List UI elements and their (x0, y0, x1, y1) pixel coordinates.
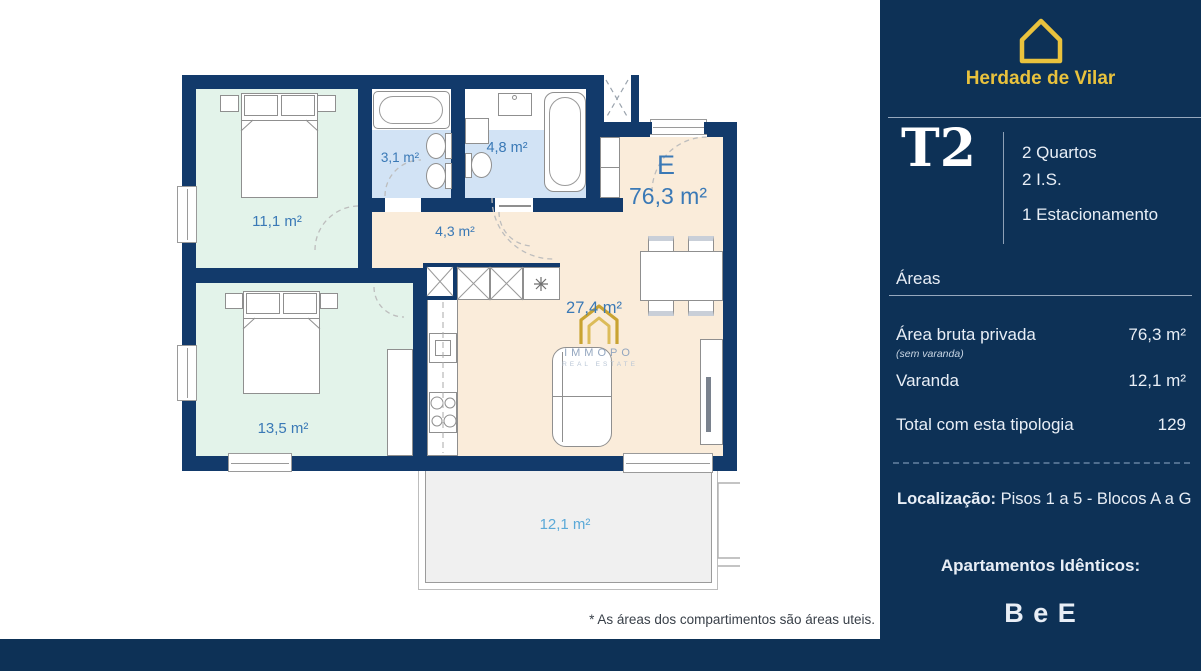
wall (723, 137, 737, 471)
label-bedroom-1: 11,1 m² (237, 213, 317, 230)
kitchen-shaft (423, 263, 457, 300)
dining-table (640, 251, 723, 301)
label-bedroom-2: 13,5 m² (243, 420, 323, 437)
feature-parking: 1 Estacionamento (1022, 205, 1158, 225)
kitchen-cabinet (457, 267, 490, 300)
label-bathroom-1: 3,1 m² (368, 150, 432, 165)
blanket-line (241, 120, 318, 121)
adjacent-balcony-lines (718, 483, 740, 566)
closet (600, 167, 620, 198)
footnote: * As áreas dos compartimentos são áreas … (589, 612, 875, 627)
area-row-value: 12,1 m² (1128, 371, 1186, 391)
project-name: Herdade de Vilar (880, 68, 1201, 90)
pillow (283, 293, 317, 314)
identical-value: B e E (880, 598, 1201, 629)
sidebar: Herdade de Vilar T2 2 Quartos 2 I.S. 1 E… (880, 0, 1201, 671)
blanket-line (243, 318, 320, 319)
closet (600, 137, 620, 168)
wall (182, 268, 427, 283)
feature-bathrooms: 2 I.S. (1022, 170, 1158, 190)
dining-chair (648, 236, 674, 252)
pillow (244, 95, 278, 116)
dining-chair (688, 236, 714, 252)
dashed-divider (893, 462, 1190, 464)
wall (707, 122, 737, 137)
typology-label: T2 (901, 123, 976, 175)
label-unit-area: 76,3 m² (622, 183, 714, 210)
entry-door (650, 119, 707, 135)
tv-cabinet (700, 339, 723, 445)
wall (413, 283, 427, 471)
nightstand (220, 95, 239, 112)
bidet-1-bowl (426, 163, 446, 189)
nightstand (225, 293, 243, 309)
stove (429, 392, 457, 433)
label-balcony: 12,1 m² (527, 516, 603, 533)
location-value: Pisos 1 a 5 - Blocos A a G (1001, 490, 1192, 508)
area-row-label: Varanda (896, 371, 959, 391)
feature-bedrooms: 2 Quartos (1022, 143, 1158, 163)
house-logo-icon (1019, 16, 1063, 64)
wardrobe-bedroom-2 (387, 349, 413, 456)
area-row-note: (sem varanda) (896, 348, 964, 360)
typology-divider (1003, 132, 1004, 244)
sofa (552, 347, 612, 447)
bidet-1-tank (445, 163, 452, 189)
tv (706, 377, 711, 432)
wall (451, 75, 465, 198)
area-row-label: Área bruta privada (896, 325, 1036, 345)
bathtub-2-basin (549, 97, 581, 186)
areas-heading: Áreas (896, 269, 940, 289)
toilet-1-tank (445, 133, 452, 159)
location-label: Localização: (897, 490, 996, 508)
wall (358, 198, 385, 212)
wall (358, 75, 372, 272)
identical-heading: Apartamentos Idênticos: (880, 556, 1201, 576)
sofa-back-line (562, 352, 563, 442)
area-row-value: 76,3 m² (1128, 325, 1186, 345)
nightstand (317, 95, 336, 112)
kitchen-cabinet (490, 267, 523, 300)
stairwell (604, 75, 631, 122)
area-row-label: Total com esta tipologia (896, 415, 1074, 435)
wall (586, 75, 600, 212)
label-hall: 4,3 m² (420, 223, 490, 239)
label-living: 27,4 m² (557, 299, 631, 318)
feature-list: 2 Quartos 2 I.S. 1 Estacionamento (1022, 143, 1158, 225)
window-bedroom-1 (177, 186, 197, 243)
pillow (246, 293, 280, 314)
location-line: Localização: Pisos 1 a 5 - Blocos A a G (897, 490, 1191, 509)
wall (182, 75, 600, 89)
entry-door-jamb (704, 122, 709, 134)
window-bedroom-2-bottom (228, 453, 292, 472)
washing-machine (523, 267, 560, 300)
pillow (281, 95, 315, 116)
wall (533, 198, 623, 212)
sink-2-faucet (512, 95, 517, 100)
entry-door-jamb (647, 122, 652, 134)
kitchen-sink-basin (435, 340, 451, 356)
room-hall (372, 212, 623, 268)
bathtub-1-basin (379, 96, 443, 124)
area-row-value: 129 (1158, 415, 1186, 435)
areas-underline (889, 295, 1192, 296)
label-bathroom-2: 4,8 m² (472, 140, 542, 156)
wall (421, 198, 495, 212)
nightstand (320, 293, 338, 309)
dining-chair (688, 300, 714, 316)
dining-chair (648, 300, 674, 316)
label-unit-letter: E (640, 150, 692, 181)
balcony-slider-door (623, 453, 713, 473)
flyer-page: IMMOPO REAL ESTATE 11,1 m² 3,1 m² 4,8 m²… (0, 0, 1201, 671)
window-bedroom-2 (177, 345, 197, 401)
